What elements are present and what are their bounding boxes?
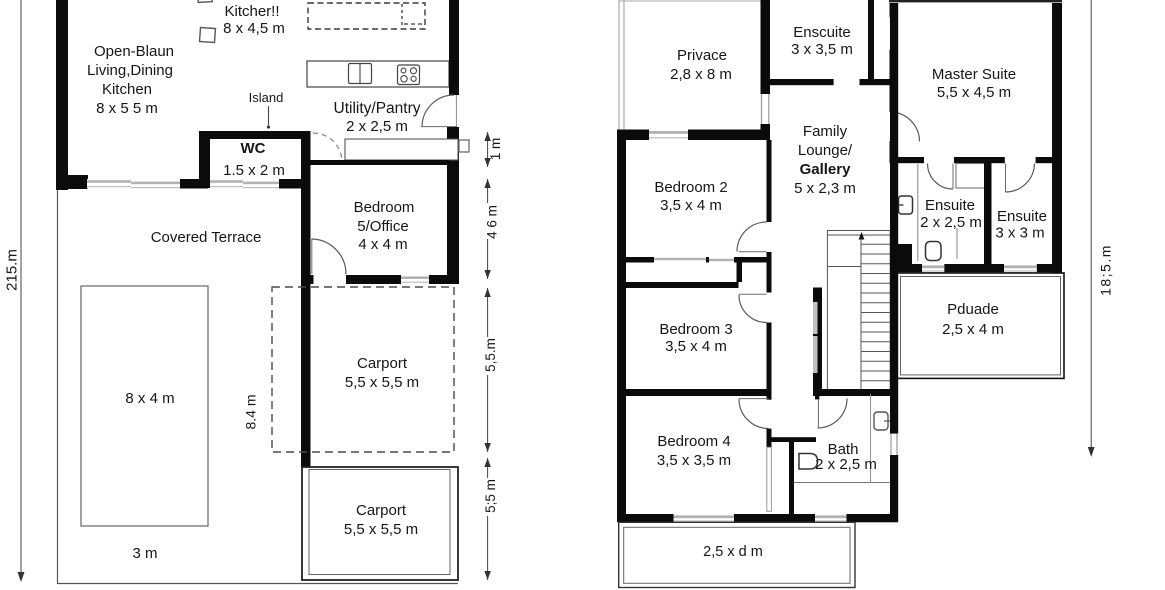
svg-text:8 x 5 5 m: 8 x 5 5 m <box>96 100 158 117</box>
svg-text:8 x 4,5 m: 8 x 4,5 m <box>223 20 285 37</box>
svg-text:3 x 3,5 m: 3 x 3,5 m <box>791 41 853 58</box>
svg-text:1 m: 1 m <box>488 138 503 161</box>
svg-text:8 x 4 m: 8 x 4 m <box>125 390 174 407</box>
svg-text:4 x 4 m: 4 x 4 m <box>358 236 407 253</box>
svg-text:4 6 m: 4 6 m <box>485 205 500 239</box>
svg-text:Carport: Carport <box>357 355 408 372</box>
svg-text:2 x 2,5 m: 2 x 2,5 m <box>346 118 408 135</box>
svg-text:2,5 x d m: 2,5 x d m <box>703 544 763 560</box>
svg-text:WC: WC <box>241 140 266 157</box>
svg-text:Bedroom: Bedroom <box>354 199 415 216</box>
svg-text:Gallery: Gallery <box>800 161 852 178</box>
svg-text:5,5 x 5,5 m: 5,5 x 5,5 m <box>345 374 419 391</box>
svg-text:8.4 m: 8.4 m <box>243 394 259 429</box>
svg-text:3,5 x 4 m: 3,5 x 4 m <box>660 197 722 214</box>
svg-text:Lounge/: Lounge/ <box>798 142 853 159</box>
svg-text:5,5 x 5,5 m: 5,5 x 5,5 m <box>344 521 418 538</box>
svg-text:Privace: Privace <box>677 47 727 64</box>
svg-text:5 x 2,3 m: 5 x 2,3 m <box>794 180 856 197</box>
svg-text:Kitchen: Kitchen <box>102 81 152 98</box>
svg-text:Family: Family <box>803 123 848 140</box>
svg-text:Utility/Pantry: Utility/Pantry <box>334 100 421 117</box>
svg-text:5,5 x 4,5 m: 5,5 x 4,5 m <box>937 84 1011 101</box>
svg-text:2 x 2,5 m: 2 x 2,5 m <box>920 214 982 231</box>
svg-text:5;5 m: 5;5 m <box>483 479 498 513</box>
svg-text:Open-Blaun: Open-Blaun <box>94 43 174 60</box>
svg-text:Bedroom 2: Bedroom 2 <box>654 179 727 196</box>
svg-text:Master Suite: Master Suite <box>932 66 1016 83</box>
svg-text:Pduade: Pduade <box>947 301 999 318</box>
svg-text:3,5 x 4 m: 3,5 x 4 m <box>665 338 727 355</box>
svg-text:Enscuite: Enscuite <box>793 24 851 41</box>
svg-text:18;5.m: 18;5.m <box>1098 244 1114 296</box>
svg-text:5,5.m: 5,5.m <box>483 338 498 372</box>
svg-text:Ensuite: Ensuite <box>925 197 975 214</box>
svg-text:Carport: Carport <box>356 502 407 519</box>
svg-text:2,8 x 8 m: 2,8 x 8 m <box>670 66 732 83</box>
svg-text:3 m: 3 m <box>132 545 157 562</box>
svg-text:3,5 x 3,5 m: 3,5 x 3,5 m <box>657 452 731 469</box>
svg-text:Island: Island <box>249 90 284 105</box>
svg-text:Ensuite: Ensuite <box>997 208 1047 225</box>
svg-text:Kitcher!!: Kitcher!! <box>224 3 279 20</box>
svg-text:3 x 3 m: 3 x 3 m <box>995 225 1044 242</box>
svg-text:5/Office: 5/Office <box>357 218 408 235</box>
svg-text:Bedroom 3: Bedroom 3 <box>659 321 732 338</box>
svg-text:2,5 x 4 m: 2,5 x 4 m <box>942 321 1004 338</box>
svg-text:215.m: 215.m <box>4 249 21 291</box>
svg-text:2 x 2,5 m: 2 x 2,5 m <box>815 456 877 473</box>
svg-text:1.5 x 2 m: 1.5 x 2 m <box>223 162 285 179</box>
svg-text:Bedroom 4: Bedroom 4 <box>657 433 730 450</box>
svg-text:Living,Dining: Living,Dining <box>87 62 173 79</box>
svg-text:Covered Terrace: Covered Terrace <box>151 229 262 246</box>
